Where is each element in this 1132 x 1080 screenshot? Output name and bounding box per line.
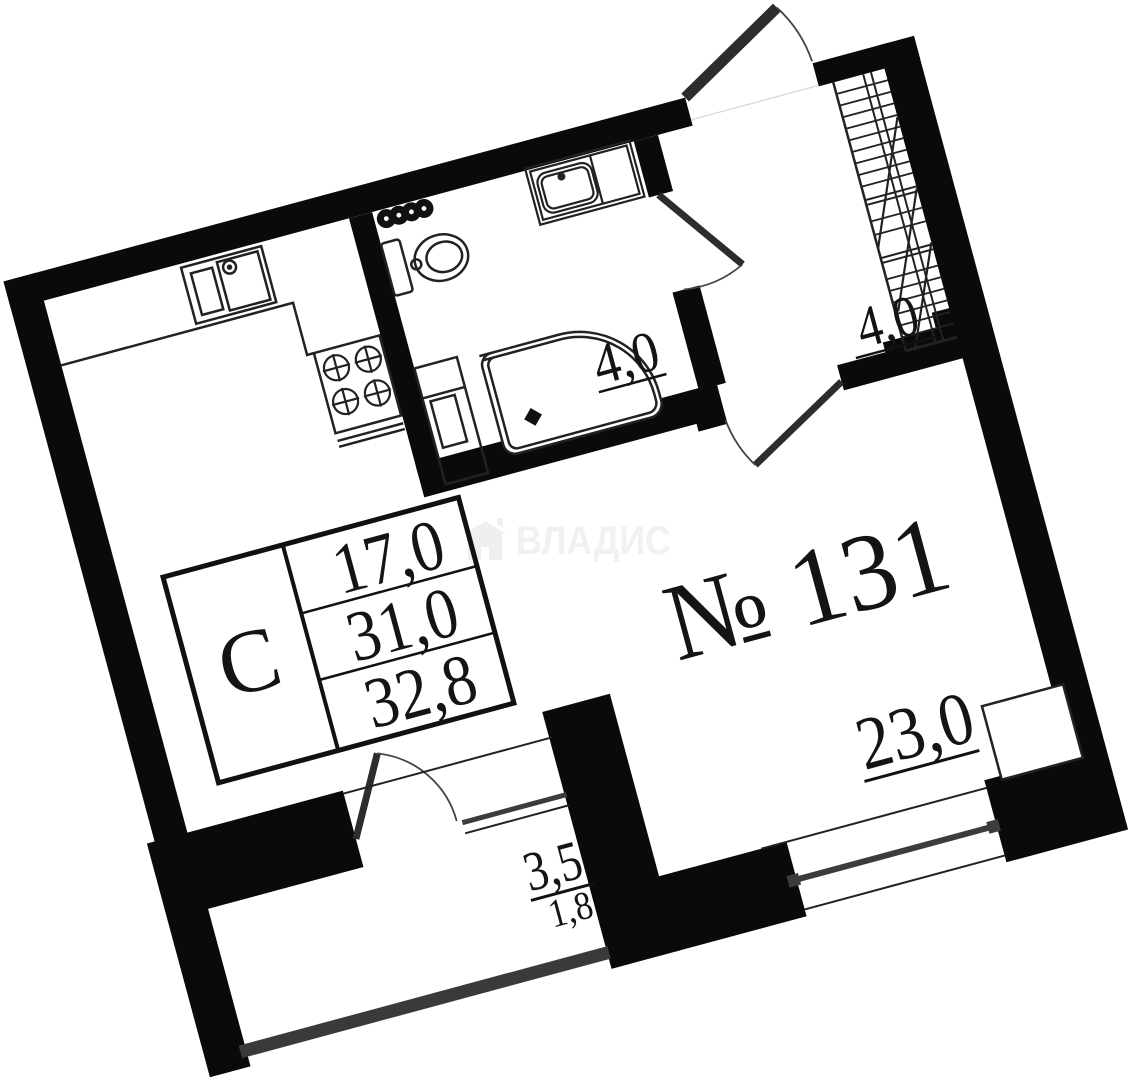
svg-text:ВЛАДИС: ВЛАДИС	[516, 519, 671, 563]
